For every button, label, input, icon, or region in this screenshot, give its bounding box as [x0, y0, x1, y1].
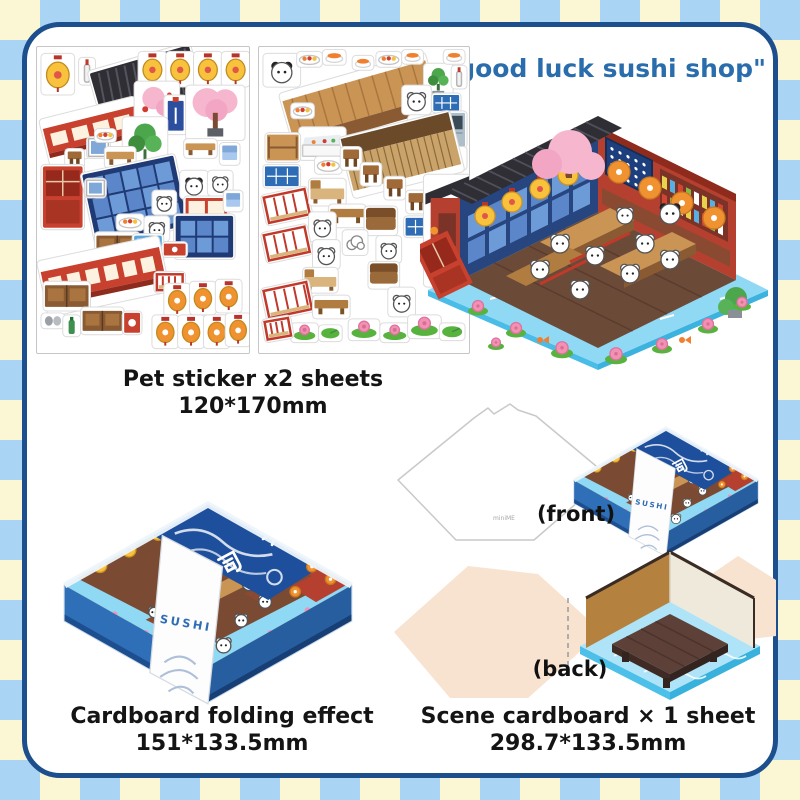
sticker-bench_tan — [309, 178, 347, 206]
sticker-food — [402, 49, 424, 64]
platform-leg — [663, 678, 670, 688]
brand-mark: miniME — [493, 515, 515, 522]
sticker-lantern_y — [194, 51, 223, 87]
product-image: "good luck sushi shop" — [0, 0, 800, 800]
sticker-sofa — [364, 206, 398, 236]
sticker-dish — [291, 103, 315, 119]
sticker-chair_blue — [223, 190, 243, 212]
sticker-lantern_y — [41, 53, 75, 95]
sticker-fence_red — [261, 314, 294, 343]
product-title: "good luck sushi shop" — [444, 54, 766, 83]
sticker-lantern_o — [164, 283, 191, 317]
folding-caption-line2: 151*133.5mm — [28, 730, 416, 757]
sticker-bench_w — [184, 139, 218, 159]
sticker-tray_blue — [263, 164, 301, 188]
sticker-lotus — [291, 323, 319, 343]
sticker-sign_red — [122, 311, 142, 335]
folding-caption: Cardboard folding effect 151*133.5mm — [28, 703, 416, 757]
sticker-food — [322, 49, 346, 65]
sticker-lantern_o — [225, 313, 250, 347]
folded-box-front-view — [566, 386, 766, 559]
sticker-sakura_tree — [186, 85, 245, 140]
sticker-stool — [340, 147, 362, 171]
sticker-cabinet — [43, 281, 91, 311]
sticker-cabinet — [81, 307, 125, 335]
sticker-dish — [376, 51, 402, 67]
sticker-lantern_o — [152, 315, 179, 349]
sticker-bottle — [451, 65, 467, 89]
sticker-food — [352, 55, 374, 70]
sticker-lantern_y — [221, 51, 250, 87]
sticker-dish — [116, 214, 144, 231]
sticker-animal — [376, 236, 402, 264]
sticker-door_red — [41, 164, 85, 229]
sticker-stool — [384, 176, 406, 200]
scene-base-illustration — [564, 548, 776, 706]
sticker-frame — [85, 178, 107, 198]
scene-caption-line2: 298.7*133.5mm — [392, 730, 784, 757]
scene-caption-line1: Scene cardboard × 1 sheet — [392, 703, 784, 730]
sticker-table_low — [312, 295, 350, 319]
scene-caption: Scene cardboard × 1 sheet 298.7*133.5mm — [392, 703, 784, 757]
sticker-stool — [360, 162, 382, 186]
sticker-sofa — [368, 261, 400, 289]
sticker-dish — [297, 51, 323, 67]
back-label: (back) — [508, 657, 632, 681]
sticker-dish — [94, 129, 116, 143]
sticker-food — [443, 49, 465, 64]
sticker-animal — [152, 190, 177, 215]
sticker-animal — [309, 212, 337, 242]
sticker-animal — [312, 240, 340, 270]
sticker-bottle_g — [63, 315, 81, 337]
sticker-lotus — [380, 323, 410, 343]
sticker-fence_red — [260, 223, 313, 264]
sticker-sign_red — [162, 242, 188, 258]
front-label: (front) — [514, 502, 638, 526]
sticker-animal — [388, 287, 416, 317]
sticker-slippers — [41, 313, 65, 329]
sticker-lantern_o — [178, 315, 205, 349]
sticker-panda — [180, 170, 209, 199]
platform-leg — [710, 652, 717, 662]
sticker-case_white — [299, 127, 347, 161]
sticker-lotus — [348, 319, 380, 341]
sticker-lantern_o — [190, 281, 217, 315]
sticker-cloud — [342, 230, 368, 256]
sticker-chair_blue — [219, 143, 240, 166]
sushi-shop-scene-illustration — [420, 94, 776, 370]
sticker-fence_red — [260, 185, 313, 226]
sticker-leaf — [318, 325, 342, 342]
pet-sticker-sheet-1 — [36, 46, 250, 354]
folding-caption-line1: Cardboard folding effect — [28, 703, 416, 730]
sticker-panda — [263, 53, 301, 87]
sticker-dish — [314, 156, 342, 174]
sticker-lantern_o — [215, 279, 242, 313]
cardboard-folded-box-illustration — [52, 438, 364, 708]
sticker-shelf_low — [265, 133, 301, 163]
